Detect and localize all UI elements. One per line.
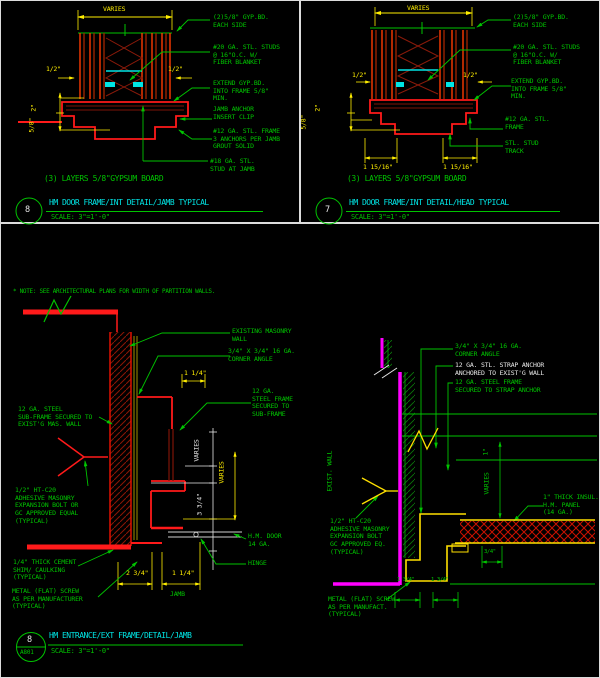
annotation-steel-frame: #12 GA. STL. FRAME 3 ANCHORS PER JAMB GR… (213, 128, 280, 151)
label-jamb: JAMB (170, 591, 185, 599)
dim-half-left: 1/2" (46, 66, 61, 74)
dim-varies-top-left: VARIES (103, 6, 125, 14)
cad-linework (0, 0, 600, 678)
detail-title: HM DOOR FRAME/INT DETAIL/JAMB TYPICAL (49, 199, 209, 208)
annotation-strap-anchor: 12 GA. STL. STRAP ANCHOR ANCHORED TO EXI… (455, 362, 544, 377)
caption-gypsum-layers: (3) LAYERS 5/8"GYPSUM BOARD (347, 175, 466, 184)
annotation-gyp-board: (2)5/8" GYP.BD. EACH SIDE (213, 14, 269, 29)
annotation-expansion-bolt: 1/2" HT-C20 ADHESIVE MASONRY EXPANSION B… (15, 487, 78, 525)
annotation-metal-screw: METAL (FLAT) SCREW AS PER MANUFACTURER (… (12, 588, 83, 611)
label-exist-wall: EXIST. WALL (326, 451, 334, 492)
annotation-steel-frame: 12 GA. STEEL FRAME SECURED TO SUB-FRAME (252, 388, 293, 419)
detail-scale: SCALE: 3"=1'-0" (351, 214, 410, 222)
detail-scale: SCALE: 3"=1'-0" (51, 214, 110, 222)
dim-1-14-top: 1 1/4" (184, 370, 206, 378)
annotation-hinge: HINGE (248, 560, 267, 568)
detail-bubble-number: 8 (25, 206, 30, 215)
dim-varies-top-right: VARIES (407, 5, 429, 13)
annotation-insul-panel: 1" THICK INSUL. H.M. PANEL (14 GA.) (543, 494, 599, 517)
caption-gypsum-layers: (3) LAYERS 5/8"GYPSUM BOARD (44, 175, 163, 184)
detail-scale: SCALE: 3"=1'-0" (51, 648, 110, 656)
annotation-stud-track: STL. STUD TRACK (505, 140, 538, 155)
partition-walls-note: * NOTE: SEE ARCHITECTURAL PLANS FOR WIDT… (13, 288, 215, 295)
detail-bubble-sheet: A801 (20, 650, 34, 656)
dim-one-inch: 1" (482, 448, 490, 455)
dim-varies-vertical-2: VARIES (218, 461, 226, 483)
annotation-expansion-bolt: 1/2" HT-C20 ADHESIVE MASONRY EXPANSION B… (330, 518, 389, 556)
dim-1-14-bottom: 1 1/4" (172, 570, 194, 578)
dim-five-eighths: 5/8" (28, 118, 36, 133)
annotation-existing-wall: EXISTING MASONRY WALL (232, 328, 291, 343)
annotation-steel-studs: #20 GA. STL. STUDS @ 16"O.C. W/ FIBER BL… (213, 44, 280, 67)
annotation-extend-gyp: EXTEND GYP.BD. INTO FRAME 5/8" MIN. (511, 78, 567, 101)
dim-varies-vertical: VARIES (483, 472, 491, 494)
dim-two-inch: 2" (30, 104, 38, 111)
annotation-stud-at-jamb: #18 GA. STL. STUD AT JAMB (210, 158, 255, 173)
dim-half-left: 1/2" (352, 72, 367, 80)
detail-title: HM ENTRANCE/EXT FRAME/DETAIL/JAMB (49, 632, 191, 641)
dim-half-right: 1/2" (168, 66, 183, 74)
dim-2-34-bottom: 2 3/4" (126, 570, 148, 578)
dim-five-eighths: 5/8" (300, 115, 308, 130)
annotation-steel-studs: #20 GA. STL. STUDS @ 16"O.C. W/ FIBER BL… (513, 44, 580, 67)
annotation-steel-frame: 12 GA. STEEL FRAME SECURED TO STRAP ANCH… (455, 379, 540, 394)
annotation-jamb-anchor: JAMB ANCHOR INSERT CLIP (213, 106, 254, 121)
dim-34: 3/4" (484, 549, 496, 555)
dim-1-34-a: 1 3/4" (397, 577, 414, 583)
annotation-subframe: 12 GA. STEEL SUB-FRAME SECURED TO EXIST'… (18, 406, 92, 429)
annotation-gyp-board: (2)5/8" GYP.BD. EACH SIDE (513, 14, 569, 29)
annotation-corner-angle: 3/4" X 3/4" 16 GA. CORNER ANGLE (228, 348, 295, 363)
detail-bubble-number: 7 (325, 206, 330, 215)
detail-bubble-number: 8 (27, 636, 32, 645)
cad-detail-sheet: VARIES 1/2" 1/2" 2" 5/8" (2)5/8" GYP.BD.… (0, 0, 600, 678)
annotation-cement-shim: 1/4" THICK CEMENT SHIM/ CAULKING (TYPICA… (13, 559, 76, 582)
dim-1-15-16-right: 1 15/16" (443, 164, 473, 172)
annotation-metal-screw: METAL (FLAT) SCREW AS PER MANUFACT. (TYP… (328, 596, 395, 619)
dim-3-34-vertical: 3 3/4" (196, 493, 204, 515)
dim-1-15-16-left: 1 15/16" (363, 164, 393, 172)
dim-varies-vertical-1: VARIES (193, 439, 201, 461)
annotation-steel-frame: #12 GA. STL. FRAME (505, 116, 550, 131)
annotation-extend-gyp: EXTEND GYP.BD. INTO FRAME 5/8" MIN. (213, 80, 269, 103)
dim-two-inch: 2" (314, 104, 322, 111)
annotation-corner-angle: 3/4" X 3/4" 16 GA. CORNER ANGLE (455, 343, 522, 358)
dim-1-34-b: 1 3/4" (431, 577, 448, 583)
detail-title: HM DOOR FRAME/INT DETAIL/HEAD TYPICAL (349, 199, 509, 208)
annotation-hm-door: H.M. DOOR 14 GA. (248, 533, 281, 548)
dim-half-right: 1/2" (463, 72, 478, 80)
